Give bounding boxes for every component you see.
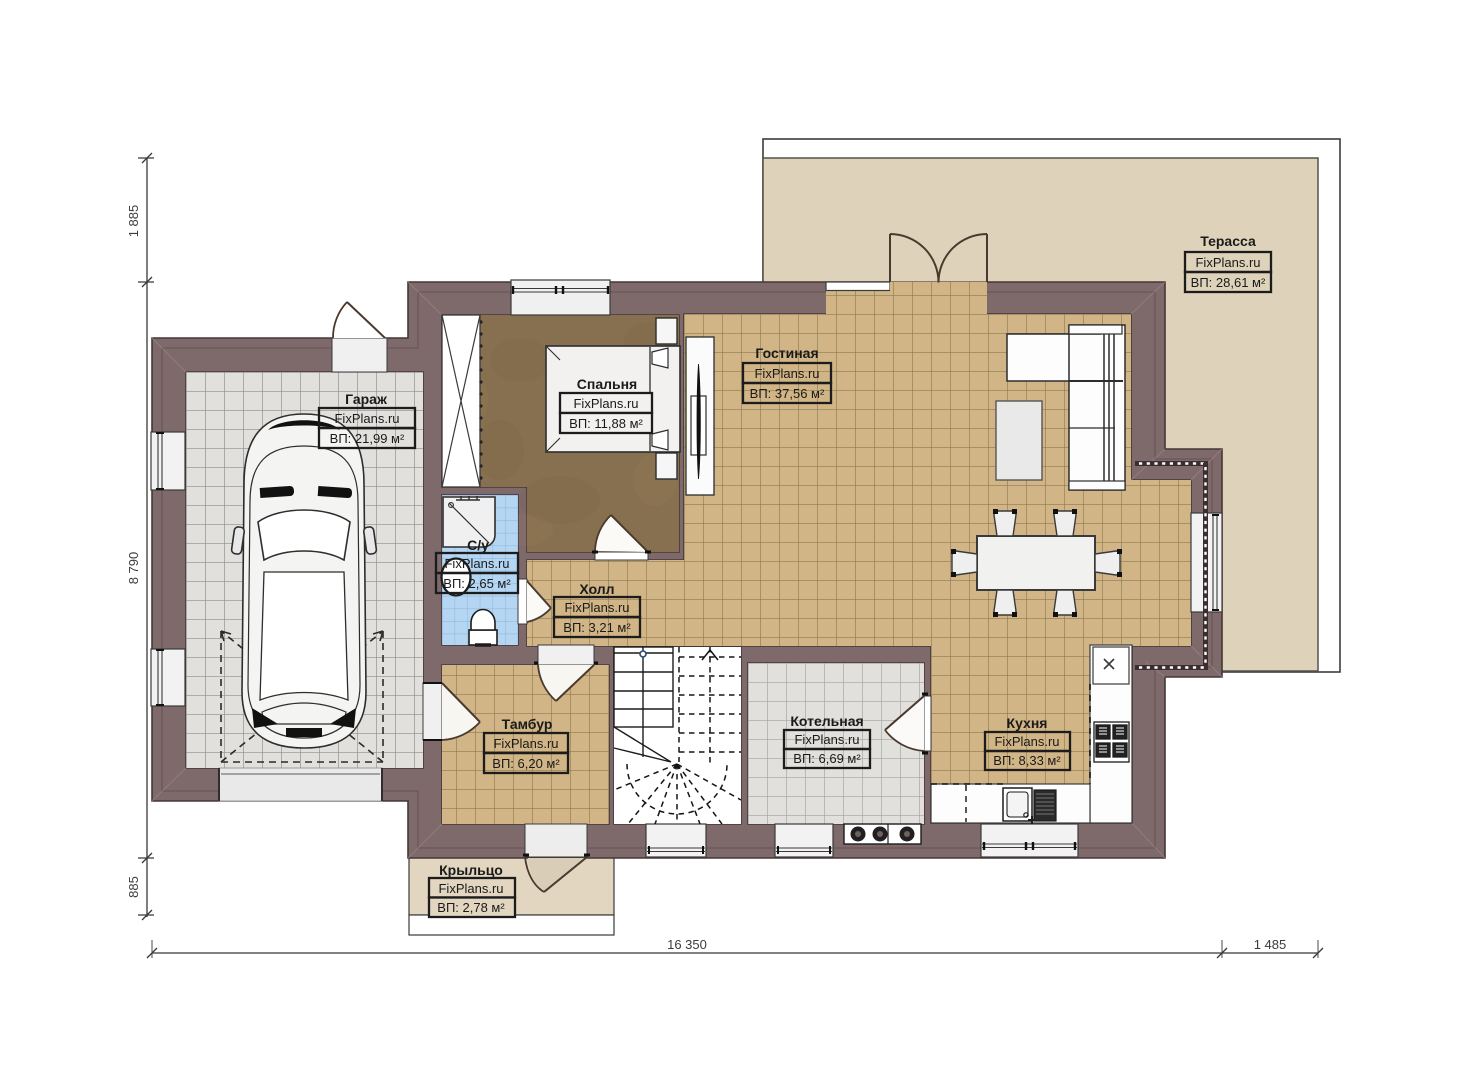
svg-text:FixPlans.ru: FixPlans.ru xyxy=(994,734,1059,749)
svg-text:ВП: 21,99 м²: ВП: 21,99 м² xyxy=(330,431,405,446)
svg-text:Кухня: Кухня xyxy=(1007,715,1048,731)
svg-text:Спальня: Спальня xyxy=(577,376,637,392)
svg-text:Гараж: Гараж xyxy=(345,391,388,407)
svg-text:FixPlans.ru: FixPlans.ru xyxy=(1195,255,1260,270)
svg-text:885: 885 xyxy=(126,876,141,898)
svg-text:С/у: С/у xyxy=(467,537,489,553)
svg-text:Терасса: Терасса xyxy=(1200,233,1256,249)
svg-text:1 885: 1 885 xyxy=(126,205,141,238)
svg-text:FixPlans.ru: FixPlans.ru xyxy=(438,881,503,896)
svg-text:ВП: 2,65 м²: ВП: 2,65 м² xyxy=(443,576,511,591)
svg-text:ВП: 11,88 м²: ВП: 11,88 м² xyxy=(569,416,643,431)
svg-text:ВП: 3,21 м²: ВП: 3,21 м² xyxy=(563,620,631,635)
svg-text:ВП: 28,61 м²: ВП: 28,61 м² xyxy=(1191,275,1266,290)
svg-text:ВП: 2,78 м²: ВП: 2,78 м² xyxy=(437,900,505,915)
svg-text:8 790: 8 790 xyxy=(126,552,141,585)
svg-text:Тамбур: Тамбур xyxy=(502,716,553,732)
svg-text:ВП: 8,33 м²: ВП: 8,33 м² xyxy=(993,753,1061,768)
svg-text:Котельная: Котельная xyxy=(790,713,863,729)
svg-text:FixPlans.ru: FixPlans.ru xyxy=(573,396,638,411)
svg-text:FixPlans.ru: FixPlans.ru xyxy=(754,366,819,381)
svg-text:FixPlans.ru: FixPlans.ru xyxy=(334,411,399,426)
svg-text:FixPlans.ru: FixPlans.ru xyxy=(444,556,509,571)
svg-text:FixPlans.ru: FixPlans.ru xyxy=(794,732,859,747)
svg-text:1 485: 1 485 xyxy=(1254,937,1287,952)
svg-text:FixPlans.ru: FixPlans.ru xyxy=(493,736,558,751)
svg-text:FixPlans.ru: FixPlans.ru xyxy=(564,600,629,615)
svg-text:ВП: 6,69 м²: ВП: 6,69 м² xyxy=(793,751,861,766)
svg-text:16 350: 16 350 xyxy=(667,937,707,952)
svg-text:Гостиная: Гостиная xyxy=(755,345,818,361)
svg-text:Крыльцо: Крыльцо xyxy=(439,862,503,878)
svg-text:Холл: Холл xyxy=(579,581,614,597)
svg-text:ВП: 6,20 м²: ВП: 6,20 м² xyxy=(492,756,560,771)
svg-text:ВП: 37,56 м²: ВП: 37,56 м² xyxy=(750,386,825,401)
